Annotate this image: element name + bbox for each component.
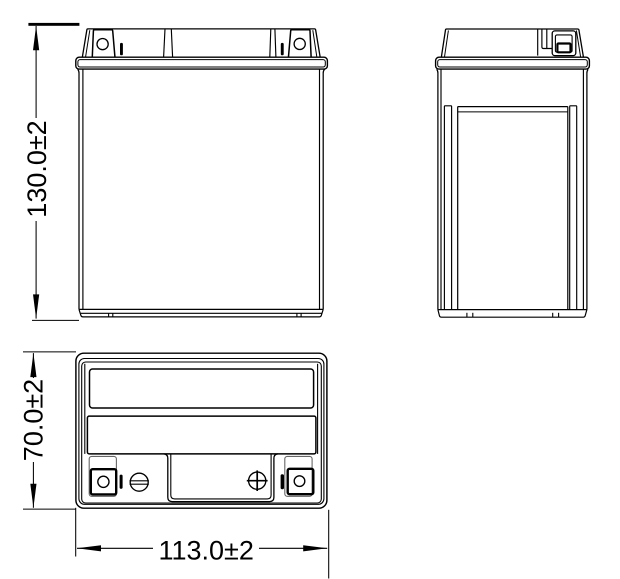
svg-text:70.0±2: 70.0±2 xyxy=(19,379,49,461)
svg-text:130.0±2: 130.0±2 xyxy=(22,120,52,217)
svg-text:113.0±2: 113.0±2 xyxy=(158,536,253,566)
